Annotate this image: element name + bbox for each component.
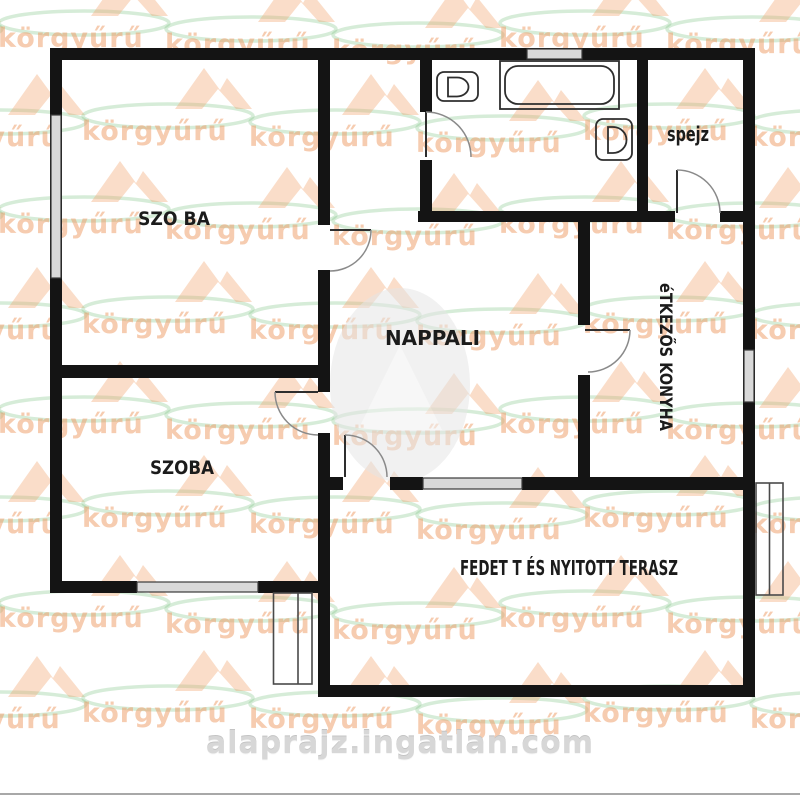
wall-terrace-top-c: [522, 477, 755, 490]
window-right-wall: [744, 350, 754, 402]
door-bathroom: [426, 112, 471, 157]
site-watermark-text: alaprajz.ingatlan.com: [0, 726, 800, 761]
bathtub-icon: [500, 61, 619, 109]
floorplan-drawing: SZO BA SZOBA NAPPALI spejz éTKEZŐS KONYH…: [0, 0, 800, 800]
window-left-wall: [51, 115, 61, 278]
label-bedroom2: SZOBA: [150, 457, 214, 479]
wall-terrace-bottom: [320, 685, 755, 697]
label-pantry: spejz: [667, 122, 709, 146]
stairs-right: [756, 483, 783, 595]
door-pantry: [677, 170, 720, 213]
window-living-terrace: [423, 478, 522, 489]
label-living-room: NAPPALI: [385, 326, 480, 350]
wall-bath-pantry-divider: [637, 60, 648, 211]
center-roundel-watermark: [330, 288, 470, 482]
floorplan-canvas: körgyűrűkörgyűrűkörgyűrűkörgyűrűkörgyűrű…: [0, 0, 800, 800]
door-kitchen: [585, 330, 630, 372]
wall-kitchen-b: [578, 375, 590, 478]
label-kitchen: éTKEZŐS KONYHA: [655, 283, 677, 432]
window-bedroom2-bottom: [137, 582, 258, 592]
label-terrace: FEDET T ÉS NYITOTT TERASZ: [460, 556, 678, 580]
toilet-icon: [437, 72, 478, 101]
wall-terrace-top-b: [390, 477, 423, 490]
wall-bottom-left-a: [50, 581, 137, 593]
door-bedroom1: [330, 230, 371, 271]
wall-bath-bottom-a: [418, 211, 675, 222]
stairs-bottom-left: [274, 593, 313, 684]
wall-kitchen-a: [578, 211, 590, 325]
wall-outer-top: [50, 48, 755, 60]
bathroom-fixtures: [437, 61, 632, 160]
sink-icon: [596, 119, 632, 160]
wall-bedroom-divider: [50, 365, 330, 378]
wall-bath-left-a: [420, 60, 432, 112]
exterior-stairs: [274, 483, 784, 684]
wall-terrace-top-a: [330, 477, 343, 490]
wall-bath-left-b: [420, 160, 432, 212]
window-top-wall: [527, 49, 582, 59]
door-bedroom2: [275, 392, 318, 435]
wall-center-vertical-c: [318, 433, 330, 697]
wall-bath-bottom-b: [720, 211, 755, 222]
wall-center-vertical-a: [318, 60, 330, 225]
label-bedroom1: SZO BA: [138, 208, 210, 230]
